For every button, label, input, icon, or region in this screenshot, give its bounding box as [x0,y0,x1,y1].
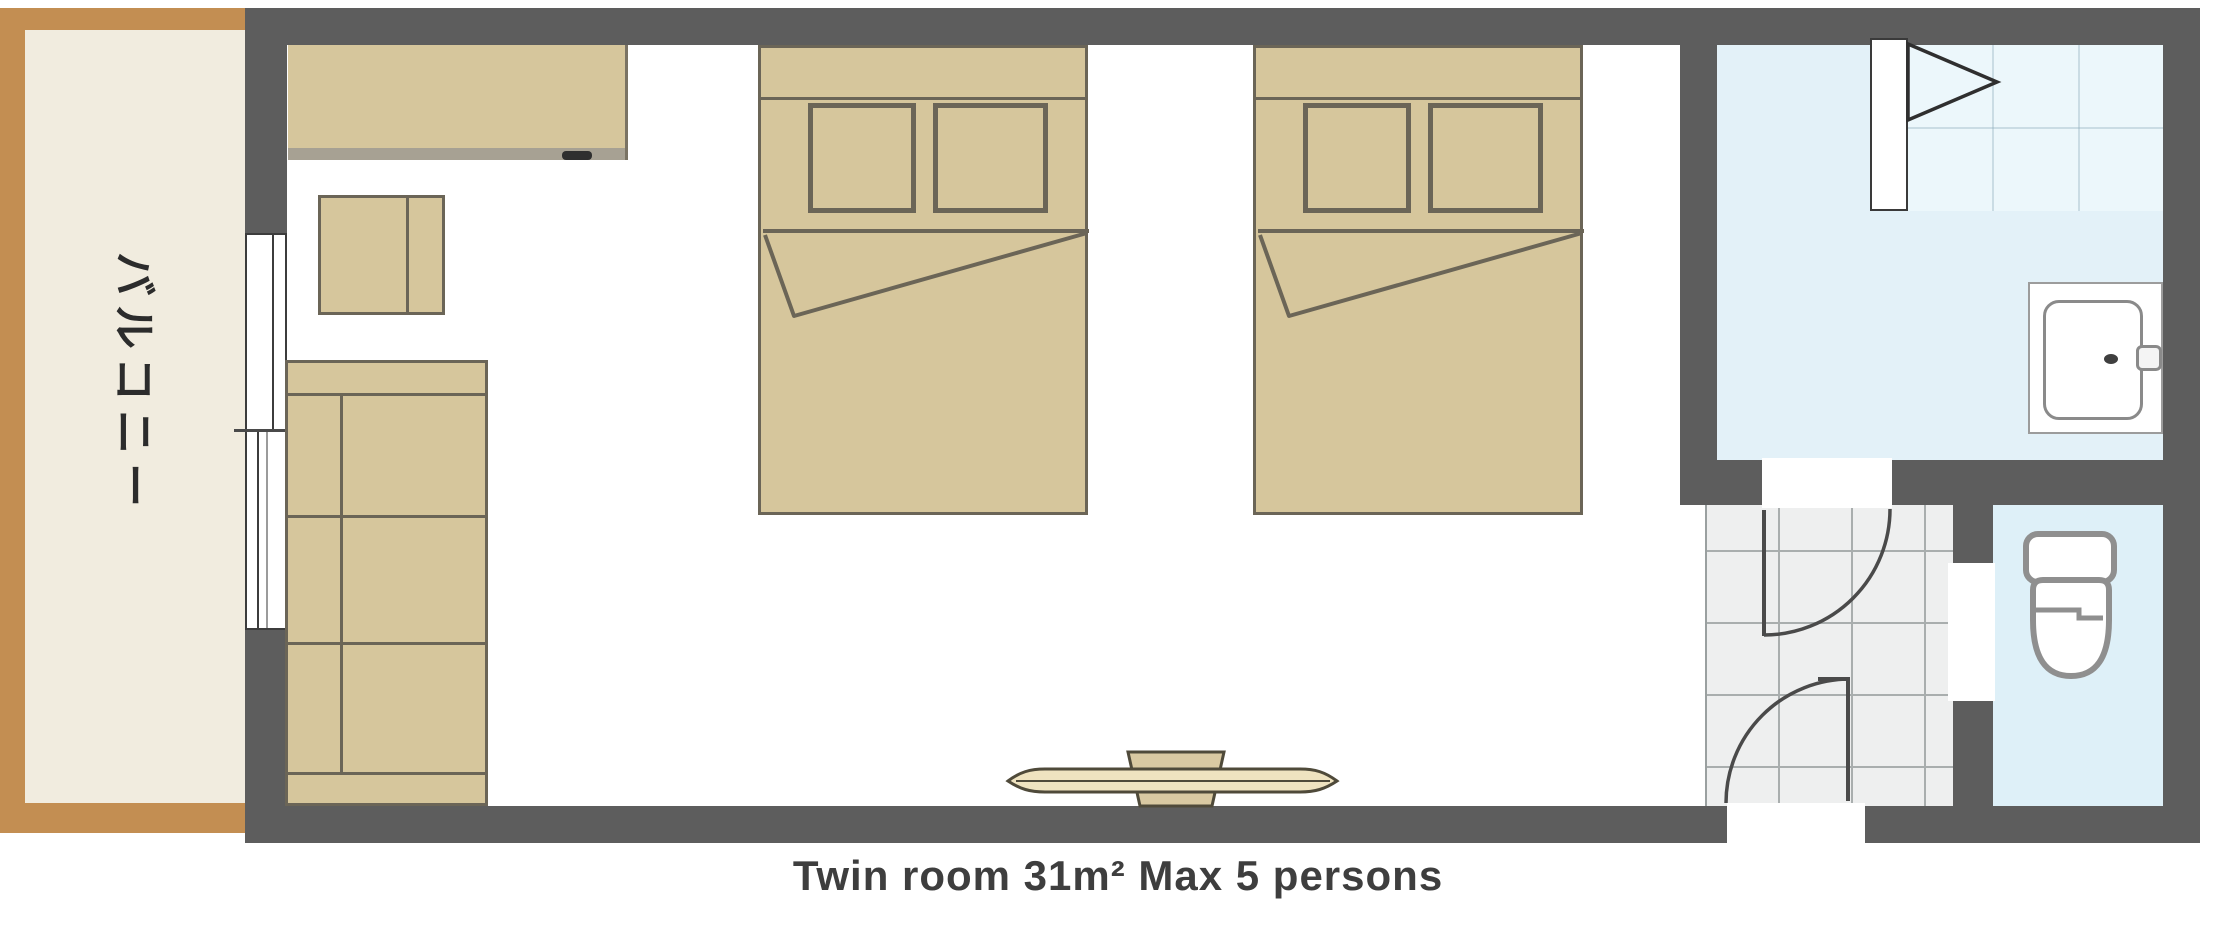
wall-bottom [245,806,2200,843]
cabinet [318,195,445,315]
tv-panel [1008,769,1337,792]
balcony-label: バルコニー [124,252,170,562]
sofa-armrest-line [288,772,485,775]
washroom-door-opening [1762,458,1892,508]
bed-1 [758,45,1088,515]
bed-blanket-fold [1256,48,1586,518]
window-pane-line [257,431,259,628]
caption: Twin room 31m² Max 5 persons [0,852,2236,900]
sink-faucet-icon [2104,354,2118,364]
cabinet-door-divider [406,198,409,312]
entry-tile-floor [1705,505,1953,806]
sofa [285,360,488,806]
bed-blanket-fold [761,48,1091,518]
toilet-room-floor [1993,505,2163,806]
toilet-door-opening [1948,563,1995,701]
wall-left-lower [245,630,287,843]
window-pane-rail [266,431,268,628]
window-pane-line [272,235,274,431]
sofa-cushion-line [288,515,485,518]
sink-handle [2136,345,2162,371]
wall-left-upper [245,8,287,233]
entrance-door-opening [1727,803,1865,845]
wall-bathroom-partition [1680,8,1717,505]
wall-right [2163,8,2200,843]
sofa-armrest-line [288,393,485,396]
floor-plan: バルコニー [0,0,2236,936]
bath-room-floor [1908,45,2163,211]
wall-washroom-bottom [1680,460,2163,505]
tv-stand [1128,752,1224,806]
sofa-cushion-line [288,642,485,645]
sink-basin [2043,300,2143,420]
desk-handle [562,151,592,160]
bed-2 [1253,45,1583,515]
desk [288,45,628,160]
sofa-backrest-line [340,393,343,775]
bath-door [1870,38,1908,211]
